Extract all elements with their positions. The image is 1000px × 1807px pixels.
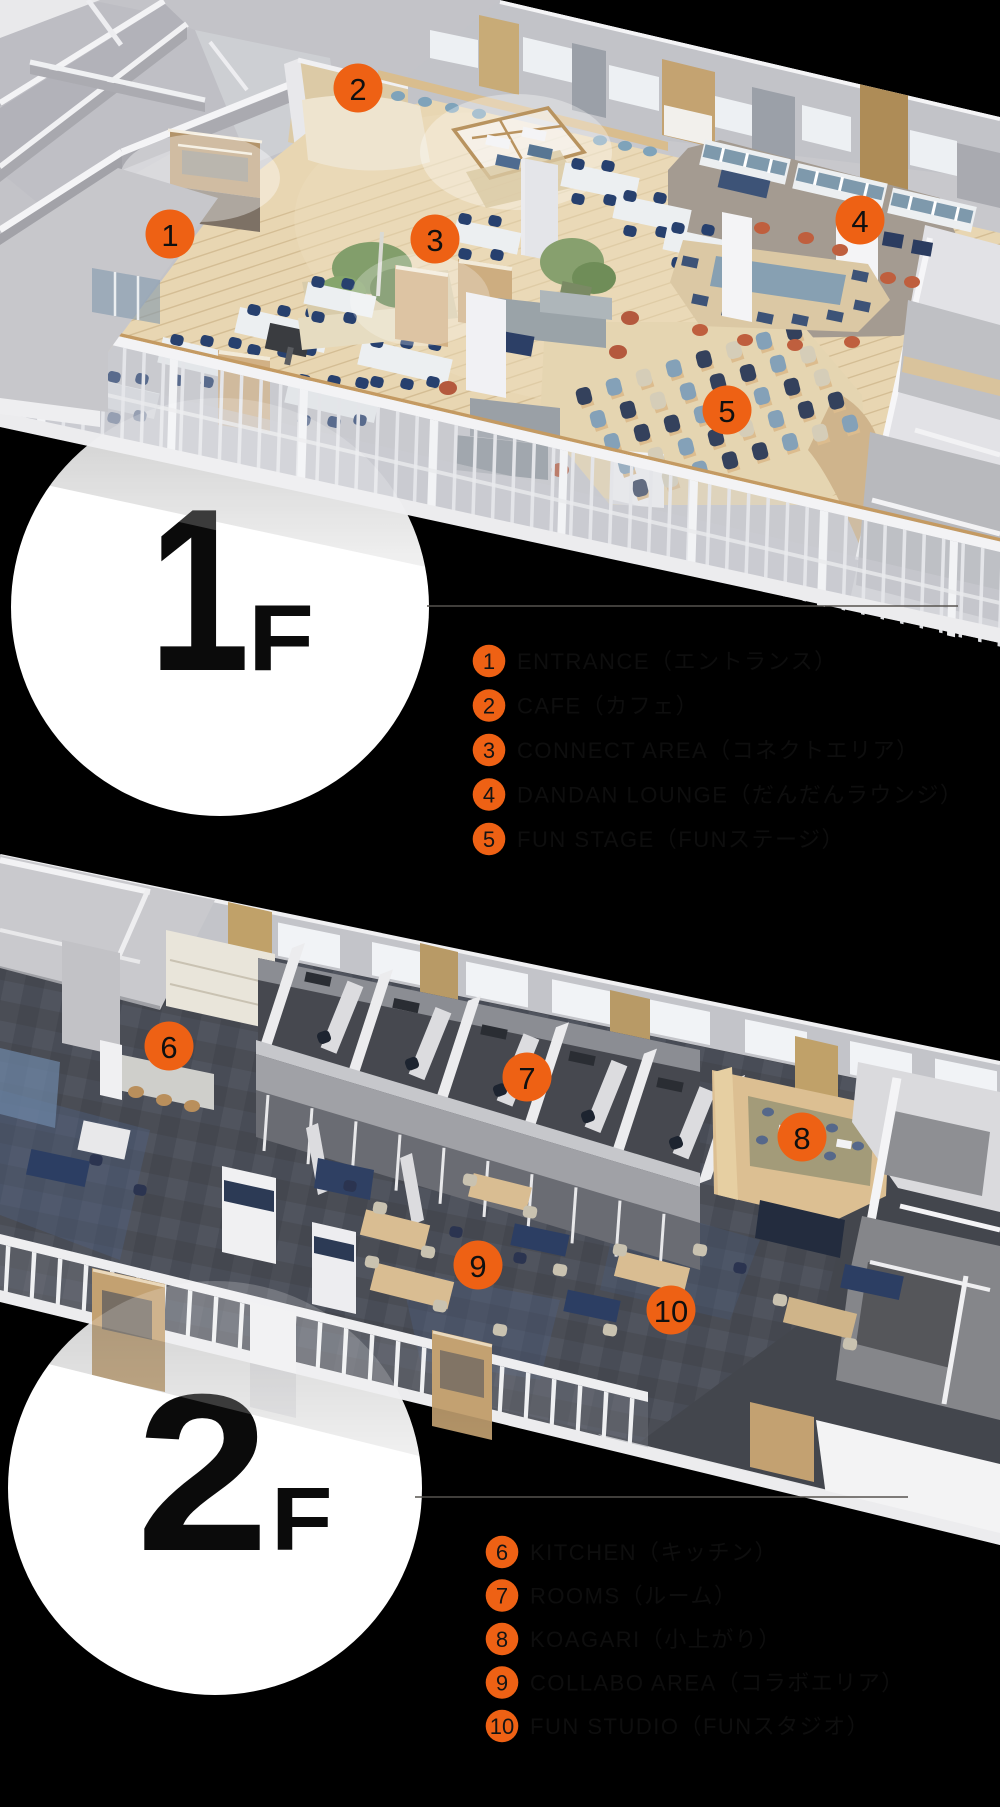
svg-text:COLLABO AREA（コラボエリア）: COLLABO AREA（コラボエリア） [530, 1671, 905, 1696]
svg-text:9: 9 [496, 1671, 508, 1696]
svg-text:1: 1 [483, 649, 495, 674]
svg-text:ROOMS（ルーム）: ROOMS（ルーム） [530, 1584, 737, 1609]
svg-text:8: 8 [496, 1627, 508, 1652]
svg-text:7: 7 [496, 1584, 508, 1609]
svg-text:2: 2 [349, 72, 366, 107]
svg-text:4: 4 [851, 204, 868, 239]
svg-text:3: 3 [483, 738, 495, 763]
svg-text:FUN STUDIO（FUNスタジオ）: FUN STUDIO（FUNスタジオ） [530, 1714, 870, 1739]
svg-text:1: 1 [161, 218, 178, 253]
svg-text:F: F [248, 586, 314, 691]
svg-text:10: 10 [490, 1714, 514, 1739]
svg-text:KITCHEN（キッチン）: KITCHEN（キッチン） [530, 1540, 778, 1565]
svg-text:4: 4 [483, 783, 495, 808]
svg-text:DANDAN LOUNGE（だんだんラウンジ）: DANDAN LOUNGE（だんだんラウンジ） [517, 783, 963, 808]
svg-text:2: 2 [483, 694, 495, 719]
svg-text:CONNECT AREA（コネクトエリア）: CONNECT AREA（コネクトエリア） [517, 738, 920, 763]
svg-text:6: 6 [496, 1540, 508, 1565]
svg-text:9: 9 [469, 1249, 486, 1284]
svg-text:7: 7 [518, 1061, 535, 1096]
svg-text:F: F [271, 1470, 333, 1570]
svg-text:5: 5 [718, 394, 735, 429]
svg-text:8: 8 [793, 1121, 810, 1156]
svg-text:10: 10 [654, 1294, 688, 1329]
svg-text:6: 6 [160, 1030, 177, 1065]
svg-text:ENTRANCE（エントランス）: ENTRANCE（エントランス） [517, 649, 838, 674]
svg-text:3: 3 [426, 223, 443, 258]
svg-text:CAFE（カフェ）: CAFE（カフェ） [517, 694, 699, 719]
svg-text:5: 5 [483, 827, 495, 852]
svg-text:FUN STAGE（FUNステージ）: FUN STAGE（FUNステージ） [517, 827, 845, 852]
svg-text:KOAGARI（小上がり）: KOAGARI（小上がり） [530, 1627, 782, 1652]
